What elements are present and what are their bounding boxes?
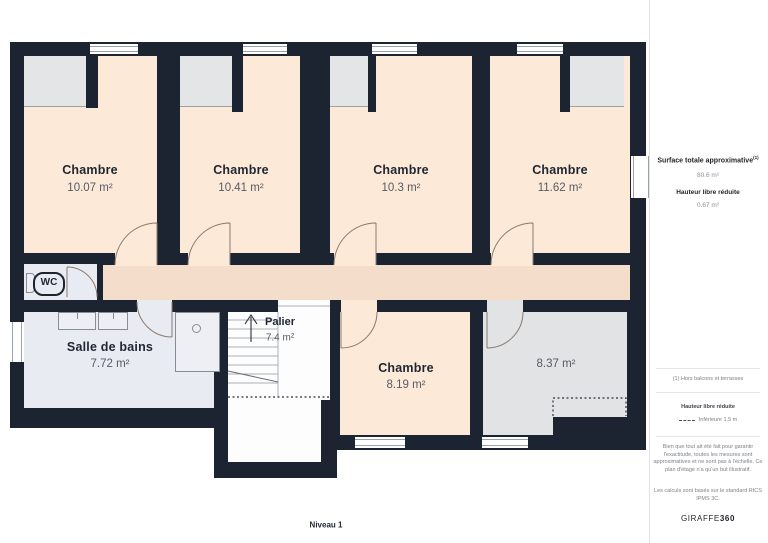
room-combles-left [483,312,553,435]
brand-bold: 360 [720,514,735,523]
label-chambre-5-area: 8.19 m² [387,379,426,391]
door-opening-chambre-2 [188,253,230,266]
level-label: Niveau 1 [310,521,343,530]
window-bottom-1 [355,437,405,448]
label-chambre-1-name: Chambre [62,163,118,177]
sidebar-divider-line-1 [656,368,760,369]
sink-left [58,312,96,330]
label-bains-area: 7.72 m² [91,358,130,370]
sidebar-surface-title: Surface totale approximative(1) [652,155,764,164]
door-opening-chambre-3 [334,253,376,266]
sidebar-disclaimer: Bien que tout ait été fait pour garantir… [652,444,764,475]
sidebar-surface-value: 80.6 m² [652,172,764,179]
door-opening-chambre-5 [341,300,377,313]
window-bottom-2 [482,437,528,448]
sidebar-divider [649,0,650,543]
door-opening-bathroom [137,300,172,313]
label-combles-area: 8.37 m² [537,358,576,370]
surface-title-sup: (1) [753,155,759,160]
shower-drain [192,324,201,333]
label-bains-name: Salle de bains [67,340,153,354]
closet-chambre-4 [570,56,624,107]
closet-wall-4 [560,56,570,112]
sink-right [98,312,128,330]
label-chambre-4-name: Chambre [532,163,588,177]
window-top-2 [243,44,287,54]
brand-light: GIRAFFE [681,514,720,523]
door-opening-combles [487,300,523,313]
surface-title-text: Surface totale approximative [657,157,753,164]
room-under-stairs [228,400,321,462]
window-top-4 [517,44,563,54]
sidebar-reduced-height-title: Hauteur libre réduite [652,189,764,196]
wc-label-box: WC [33,272,65,296]
label-chambre-3-area: 10.3 m² [382,182,421,194]
sidebar-divider-line-3 [656,436,760,437]
label-chambre-2-name: Chambre [213,163,269,177]
window-top-3 [372,44,417,54]
label-chambre-3-name: Chambre [373,163,429,177]
window-left [10,322,24,362]
sidebar-legend-item: Inférieure 1.5 m [699,417,738,425]
label-palier-area: 7.4 m² [266,333,294,344]
label-chambre-1-area: 10.07 m² [67,182,112,194]
window-top-1 [90,44,138,54]
closet-chambre-3 [330,56,368,107]
wc-label: WC [41,277,58,288]
shower [175,312,220,372]
sidebar-footnote: (1) Hors balcons et terrasses [652,376,764,384]
sidebar-divider-line-2 [656,392,760,393]
sidebar-legend-row: Inférieure 1.5 m [652,417,764,425]
sidebar-reduced-height-value: 0.67 m² [652,202,764,209]
giraffe360-logo: GIRAFFE360 [652,514,764,523]
corridor [103,265,630,300]
sidebar-legend-title: Hauteur libre réduite [652,404,764,412]
palier-opening [278,300,330,313]
dashed-line-icon [679,420,695,421]
label-chambre-5-name: Chambre [378,361,434,375]
closet-wall-1 [86,56,98,108]
door-opening-chambre-4 [491,253,533,266]
door-opening-chambre-1 [115,253,157,266]
label-chambre-4-area: 11.62 m² [538,182,583,194]
closet-wall-2 [232,56,243,112]
floor-plan-page: WC [0,0,768,543]
sidebar-standard-note: Les calculs sont basés sur le standard R… [652,488,764,503]
label-palier-name: Palier [265,316,295,328]
closet-chambre-2 [180,56,232,107]
closet-wall-3 [368,56,376,112]
label-chambre-2-area: 10.41 m² [218,182,263,194]
window-right [631,156,651,198]
closet-chambre-1 [24,56,86,107]
